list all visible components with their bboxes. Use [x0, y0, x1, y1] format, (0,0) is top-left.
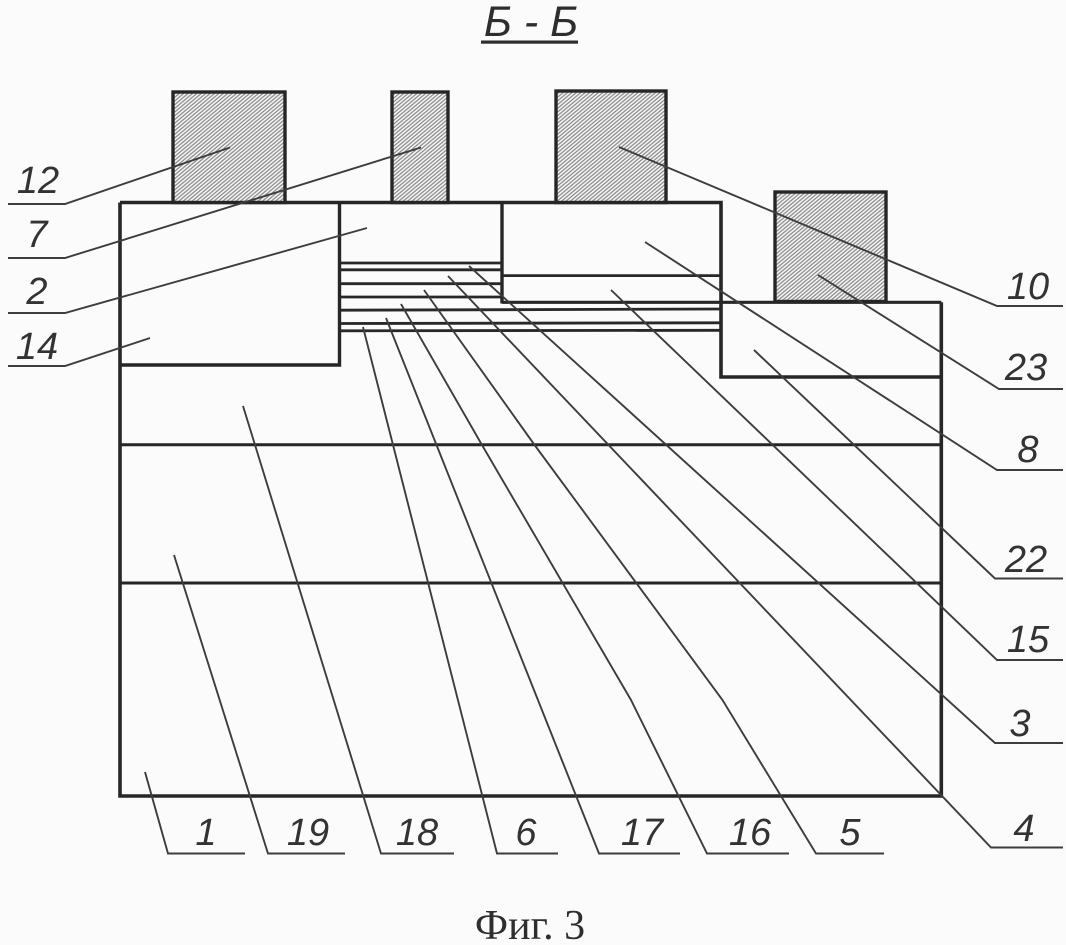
svg-text:23: 23	[1004, 347, 1047, 389]
svg-text:15: 15	[1007, 619, 1050, 661]
svg-text:7: 7	[26, 214, 49, 256]
svg-text:18: 18	[396, 812, 438, 854]
svg-text:5: 5	[839, 812, 861, 854]
svg-text:4: 4	[1013, 808, 1034, 850]
svg-text:22: 22	[1004, 539, 1047, 581]
svg-text:2: 2	[25, 271, 47, 313]
svg-text:17: 17	[621, 812, 665, 854]
svg-text:6: 6	[515, 812, 537, 854]
svg-text:19: 19	[287, 812, 329, 854]
svg-text:Фиг. 3: Фиг. 3	[475, 903, 585, 945]
svg-text:1: 1	[195, 812, 216, 854]
svg-text:10: 10	[1007, 266, 1049, 308]
svg-text:12: 12	[17, 160, 59, 202]
svg-text:3: 3	[1009, 703, 1030, 745]
svg-text:8: 8	[1017, 429, 1038, 471]
svg-text:Б - Б: Б - Б	[484, 0, 578, 46]
svg-text:14: 14	[16, 326, 58, 368]
svg-text:16: 16	[729, 812, 772, 854]
